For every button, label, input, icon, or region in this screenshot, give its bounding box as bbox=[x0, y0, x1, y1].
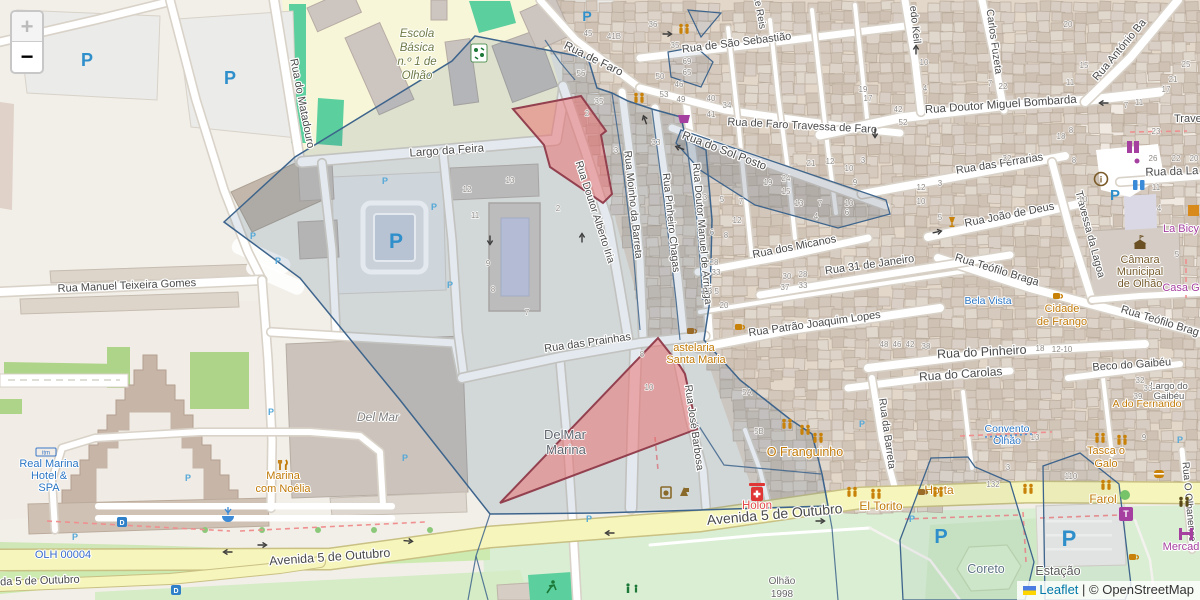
svg-text:3: 3 bbox=[703, 193, 708, 202]
svg-text:i: i bbox=[1100, 175, 1103, 185]
svg-text:OLH 00004: OLH 00004 bbox=[35, 549, 91, 561]
svg-text:22: 22 bbox=[999, 82, 1008, 91]
svg-text:Galo: Galo bbox=[1094, 458, 1117, 470]
svg-text:35: 35 bbox=[595, 97, 604, 106]
svg-text:1998: 1998 bbox=[771, 589, 794, 600]
svg-text:32: 32 bbox=[1003, 154, 1012, 163]
svg-text:P: P bbox=[268, 407, 274, 417]
svg-text:7: 7 bbox=[739, 197, 744, 206]
svg-text:21: 21 bbox=[1169, 75, 1178, 84]
svg-text:Casa G: Casa G bbox=[1162, 282, 1199, 294]
svg-text:21: 21 bbox=[807, 159, 816, 168]
svg-text:7: 7 bbox=[988, 79, 993, 88]
svg-text:8: 8 bbox=[1072, 156, 1077, 165]
svg-text:P: P bbox=[402, 453, 408, 463]
svg-text:40: 40 bbox=[707, 94, 716, 103]
svg-text:12: 12 bbox=[917, 183, 926, 192]
svg-text:P: P bbox=[582, 8, 591, 24]
svg-text:Tasca o: Tasca o bbox=[1087, 445, 1125, 457]
svg-text:P: P bbox=[224, 68, 236, 88]
svg-text:Mercad: Mercad bbox=[1163, 541, 1200, 553]
svg-text:30: 30 bbox=[783, 272, 792, 281]
svg-text:3: 3 bbox=[861, 156, 866, 165]
svg-text:n.º 1 de: n.º 1 de bbox=[397, 56, 436, 68]
svg-text:15: 15 bbox=[1080, 61, 1089, 70]
svg-text:3: 3 bbox=[938, 179, 943, 188]
svg-text:P: P bbox=[909, 514, 915, 524]
svg-text:15: 15 bbox=[782, 187, 791, 196]
svg-text:Olhão: Olhão bbox=[402, 70, 433, 82]
svg-text:33: 33 bbox=[712, 268, 721, 277]
svg-text:astelaria: astelaria bbox=[673, 342, 715, 354]
svg-text:Básica: Básica bbox=[400, 42, 435, 54]
svg-text:13: 13 bbox=[795, 199, 804, 208]
svg-text:Rua da La: Rua da La bbox=[1145, 165, 1199, 179]
svg-text:P: P bbox=[382, 176, 388, 186]
svg-text:37: 37 bbox=[781, 283, 790, 292]
svg-text:56: 56 bbox=[577, 69, 586, 78]
svg-text:Santa Maria: Santa Maria bbox=[666, 354, 726, 366]
svg-text:65: 65 bbox=[683, 68, 692, 77]
svg-text:D: D bbox=[173, 588, 178, 595]
svg-text:P: P bbox=[934, 526, 947, 548]
svg-text:2: 2 bbox=[585, 109, 590, 118]
svg-text:45: 45 bbox=[584, 29, 593, 38]
svg-text:53: 53 bbox=[660, 90, 669, 99]
svg-text:A do Fernando: A do Fernando bbox=[1113, 398, 1182, 410]
svg-text:8: 8 bbox=[640, 350, 645, 359]
svg-text:de Frango: de Frango bbox=[1037, 316, 1087, 328]
svg-text:41B: 41B bbox=[607, 32, 621, 41]
svg-text:Marina: Marina bbox=[546, 442, 587, 457]
svg-text:28: 28 bbox=[799, 270, 808, 279]
svg-text:12: 12 bbox=[826, 157, 835, 166]
svg-text:5: 5 bbox=[938, 213, 943, 222]
svg-text:P: P bbox=[1177, 435, 1183, 445]
svg-text:7: 7 bbox=[525, 308, 530, 317]
svg-text:52: 52 bbox=[899, 118, 908, 127]
svg-text:Câmara: Câmara bbox=[1120, 254, 1160, 266]
svg-text:35: 35 bbox=[671, 41, 680, 50]
svg-text:Olhão: Olhão bbox=[993, 435, 1021, 447]
svg-text:19: 19 bbox=[764, 178, 773, 187]
svg-text:P: P bbox=[72, 532, 78, 542]
svg-text:42: 42 bbox=[906, 340, 915, 349]
svg-text:9: 9 bbox=[853, 178, 858, 187]
svg-text:P: P bbox=[185, 473, 191, 483]
svg-text:P: P bbox=[859, 419, 865, 429]
svg-text:Farol: Farol bbox=[1089, 492, 1116, 506]
svg-text:17: 17 bbox=[1162, 85, 1171, 94]
svg-text:P: P bbox=[275, 256, 281, 266]
svg-text:41: 41 bbox=[707, 110, 716, 119]
svg-text:10: 10 bbox=[920, 58, 929, 67]
svg-text:La Bicy: La Bicy bbox=[1163, 223, 1200, 235]
svg-text:4: 4 bbox=[814, 212, 819, 221]
svg-text:2: 2 bbox=[556, 204, 561, 213]
svg-text:Convento: Convento bbox=[985, 423, 1030, 435]
svg-text:7: 7 bbox=[818, 199, 823, 208]
svg-text:13: 13 bbox=[506, 176, 515, 185]
svg-text:11: 11 bbox=[471, 211, 480, 220]
svg-text:P: P bbox=[1110, 187, 1120, 204]
svg-text:5A: 5A bbox=[742, 388, 752, 397]
svg-text:8: 8 bbox=[1069, 126, 1074, 135]
svg-text:3: 3 bbox=[1006, 463, 1011, 472]
svg-text:46: 46 bbox=[893, 340, 902, 349]
svg-text:Estação: Estação bbox=[1035, 564, 1080, 578]
svg-text:42: 42 bbox=[894, 105, 903, 114]
svg-text:4: 4 bbox=[1157, 204, 1162, 213]
svg-text:36: 36 bbox=[649, 20, 658, 29]
svg-text:11: 11 bbox=[1135, 98, 1144, 107]
svg-text:Real Marina: Real Marina bbox=[19, 458, 79, 470]
svg-text:P: P bbox=[431, 202, 437, 212]
svg-text:Cidade: Cidade bbox=[1045, 303, 1080, 315]
svg-text:10: 10 bbox=[1079, 195, 1088, 204]
svg-text:8: 8 bbox=[724, 231, 729, 240]
svg-text:T: T bbox=[1123, 509, 1129, 519]
svg-text:10: 10 bbox=[645, 383, 654, 392]
svg-text:22: 22 bbox=[1172, 154, 1181, 163]
svg-text:10: 10 bbox=[845, 199, 854, 208]
svg-text:5: 5 bbox=[1175, 250, 1180, 259]
svg-text:20: 20 bbox=[1064, 20, 1073, 29]
svg-text:24: 24 bbox=[782, 174, 791, 183]
svg-text:Del Mar: Del Mar bbox=[357, 410, 400, 424]
svg-text:25: 25 bbox=[1182, 60, 1191, 69]
svg-text:com Noélia: com Noélia bbox=[255, 483, 311, 495]
svg-text:69: 69 bbox=[683, 57, 692, 66]
svg-text:12: 12 bbox=[463, 185, 472, 194]
svg-text:Hotel &: Hotel & bbox=[31, 470, 68, 482]
svg-text:6: 6 bbox=[710, 228, 715, 237]
svg-text:D: D bbox=[119, 520, 124, 527]
svg-text:Olhão: Olhão bbox=[769, 576, 796, 587]
svg-text:SPA: SPA bbox=[38, 482, 60, 494]
svg-text:11: 11 bbox=[1066, 78, 1075, 87]
svg-text:Escola: Escola bbox=[400, 28, 435, 40]
svg-text:P: P bbox=[250, 231, 256, 241]
svg-text:110: 110 bbox=[1065, 472, 1078, 481]
svg-text:7: 7 bbox=[1124, 101, 1129, 110]
svg-text:Marina: Marina bbox=[266, 470, 301, 482]
svg-text:23: 23 bbox=[1152, 127, 1161, 136]
svg-text:132: 132 bbox=[986, 480, 1000, 489]
svg-text:itm: itm bbox=[42, 451, 50, 457]
svg-text:de Olhão: de Olhão bbox=[1118, 278, 1163, 290]
svg-text:P: P bbox=[81, 50, 93, 70]
svg-text:P: P bbox=[447, 280, 453, 290]
svg-text:48: 48 bbox=[880, 340, 889, 349]
svg-text:1 3 5: 1 3 5 bbox=[701, 287, 719, 296]
svg-text:49: 49 bbox=[677, 95, 686, 104]
svg-text:Coreto: Coreto bbox=[967, 562, 1005, 576]
svg-text:4: 4 bbox=[923, 84, 928, 93]
svg-text:33: 33 bbox=[799, 281, 808, 290]
svg-text:18: 18 bbox=[1036, 344, 1045, 353]
svg-text:33: 33 bbox=[1144, 384, 1153, 393]
svg-text:26: 26 bbox=[1149, 154, 1158, 163]
svg-text:17: 17 bbox=[864, 94, 873, 103]
svg-text:34: 34 bbox=[723, 101, 732, 110]
svg-text:Municipal: Municipal bbox=[1117, 266, 1163, 278]
svg-text:13: 13 bbox=[1031, 433, 1040, 442]
svg-text:12-10: 12-10 bbox=[1052, 345, 1073, 354]
svg-text:20: 20 bbox=[720, 301, 729, 310]
svg-text:20: 20 bbox=[1190, 154, 1199, 163]
svg-text:38: 38 bbox=[922, 342, 931, 351]
svg-text:P: P bbox=[1062, 526, 1077, 551]
svg-text:P: P bbox=[389, 230, 403, 253]
svg-text:P: P bbox=[586, 514, 592, 524]
svg-text:11: 11 bbox=[1152, 183, 1161, 192]
svg-text:Travessa: Travessa bbox=[1174, 113, 1200, 125]
svg-text:46: 46 bbox=[675, 80, 684, 89]
svg-text:10: 10 bbox=[845, 164, 854, 173]
svg-text:10: 10 bbox=[917, 197, 926, 206]
svg-text:Bela Vista: Bela Vista bbox=[964, 295, 1011, 307]
svg-text:6: 6 bbox=[845, 208, 850, 217]
svg-text:Holon: Holon bbox=[742, 500, 772, 512]
svg-text:28: 28 bbox=[710, 258, 719, 267]
svg-text:19: 19 bbox=[859, 85, 868, 94]
svg-text:3: 3 bbox=[614, 146, 619, 155]
svg-text:5: 5 bbox=[720, 195, 725, 204]
svg-text:50: 50 bbox=[656, 72, 665, 81]
svg-text:5B: 5B bbox=[754, 427, 764, 436]
svg-text:DelMar: DelMar bbox=[544, 427, 587, 442]
svg-text:12: 12 bbox=[733, 216, 742, 225]
svg-text:9: 9 bbox=[1142, 433, 1147, 442]
svg-text:8: 8 bbox=[491, 285, 496, 294]
svg-text:Horta: Horta bbox=[924, 483, 954, 497]
svg-text:O Franguinho: O Franguinho bbox=[767, 445, 843, 459]
svg-text:18: 18 bbox=[1057, 132, 1066, 141]
svg-text:El Torito: El Torito bbox=[859, 499, 902, 513]
svg-text:9: 9 bbox=[486, 259, 491, 268]
svg-text:33: 33 bbox=[652, 138, 661, 147]
